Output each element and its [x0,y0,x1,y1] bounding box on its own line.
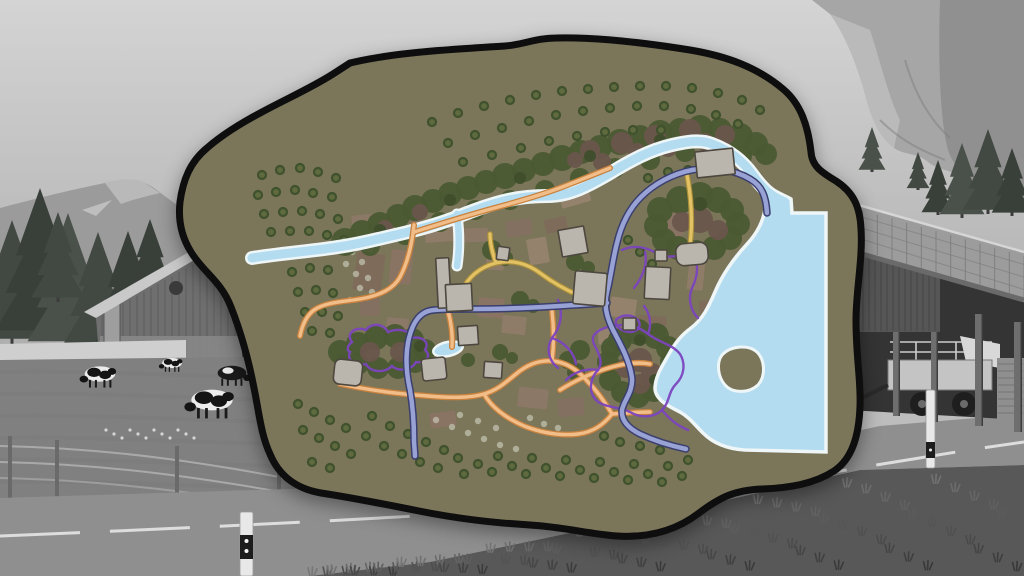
lake-island [718,347,763,391]
map-overlay [0,0,1024,576]
screenshot-root [0,0,1024,576]
